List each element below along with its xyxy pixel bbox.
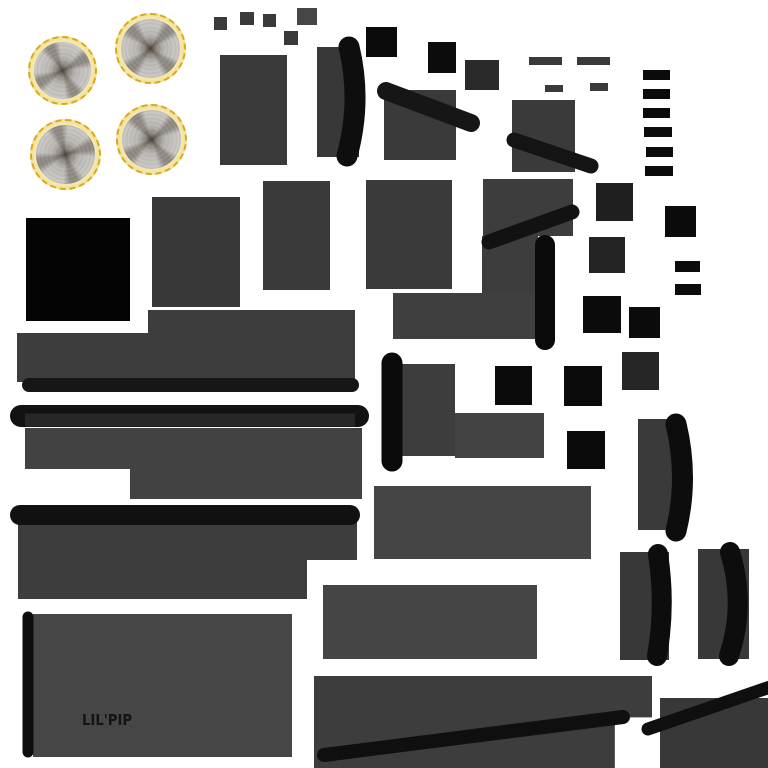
panel-tall-1 — [220, 55, 287, 165]
black-square-3 — [665, 206, 696, 237]
panel-square-2 — [512, 100, 575, 172]
panel-wide-1 — [393, 293, 538, 339]
crescent-panel-a — [620, 552, 669, 660]
wheel-texture-4 — [116, 104, 187, 175]
ladder-bar-2 — [643, 89, 670, 99]
dark-square-1 — [465, 60, 499, 90]
panel-tall-3 — [263, 181, 330, 290]
panel-mid-1 — [391, 364, 455, 456]
dark-square-3 — [589, 237, 625, 273]
ladder-bar-5 — [646, 147, 673, 157]
ladder-bar-3 — [643, 108, 670, 118]
chip-square-1 — [214, 17, 227, 30]
dark-square-4 — [622, 352, 659, 390]
chip-square-2 — [240, 12, 254, 25]
deck-panel-2b — [18, 519, 307, 599]
black-square-2 — [428, 42, 456, 73]
strip-bar-4 — [590, 83, 608, 91]
black-bar-1 — [675, 261, 700, 272]
band-wide-1 — [17, 333, 355, 382]
band-wide-2 — [25, 428, 362, 469]
crescent-panel-right — [638, 419, 685, 530]
black-square-1 — [366, 27, 397, 57]
bottom-panel — [314, 676, 652, 768]
ladder-bar-1 — [643, 70, 670, 80]
crescent-panel-b — [698, 549, 749, 659]
black-square-7 — [564, 366, 602, 406]
chip-square-4 — [297, 8, 317, 25]
panel-tall-2 — [152, 197, 240, 307]
wheel-texture-3 — [30, 119, 101, 190]
chip-square-3 — [263, 14, 276, 27]
corner-panel — [660, 698, 768, 768]
ladder-bar-4 — [644, 127, 672, 137]
wheel-hub-cross — [120, 108, 182, 170]
panel-mid-2 — [455, 413, 544, 458]
chip-square-5 — [284, 31, 298, 45]
panel-square-1 — [384, 90, 456, 160]
band-step-top — [148, 310, 355, 335]
black-bar-2 — [675, 284, 701, 295]
panel-l-top — [483, 179, 573, 236]
lilpip-panel — [33, 614, 292, 757]
wheel-hub-cross — [118, 16, 183, 81]
crescent-panel-top — [317, 47, 359, 157]
strip-bar-1 — [529, 57, 562, 65]
wheel-hub-cross — [29, 37, 97, 105]
ladder-bar-6 — [645, 166, 673, 176]
dark-square-2 — [596, 183, 633, 221]
strip-bar-2 — [577, 57, 610, 65]
atlas-label: LIL'PIP — [82, 711, 132, 729]
band-step-bottom — [130, 469, 362, 499]
black-square-6 — [495, 366, 532, 405]
deck-panel-3 — [323, 585, 537, 659]
wheel-texture-2 — [115, 13, 186, 84]
wheel-texture-1 — [28, 36, 97, 105]
black-square-8 — [567, 431, 605, 469]
black-square-4 — [583, 296, 621, 333]
deck-panel-1 — [374, 486, 591, 559]
black-panel — [26, 218, 130, 321]
black-square-5 — [629, 307, 660, 338]
wheel-hub-cross — [27, 116, 104, 193]
texture-atlas: LIL'PIP — [0, 0, 768, 768]
strip-bar-3 — [545, 85, 563, 92]
panel-tall-4 — [366, 180, 452, 289]
